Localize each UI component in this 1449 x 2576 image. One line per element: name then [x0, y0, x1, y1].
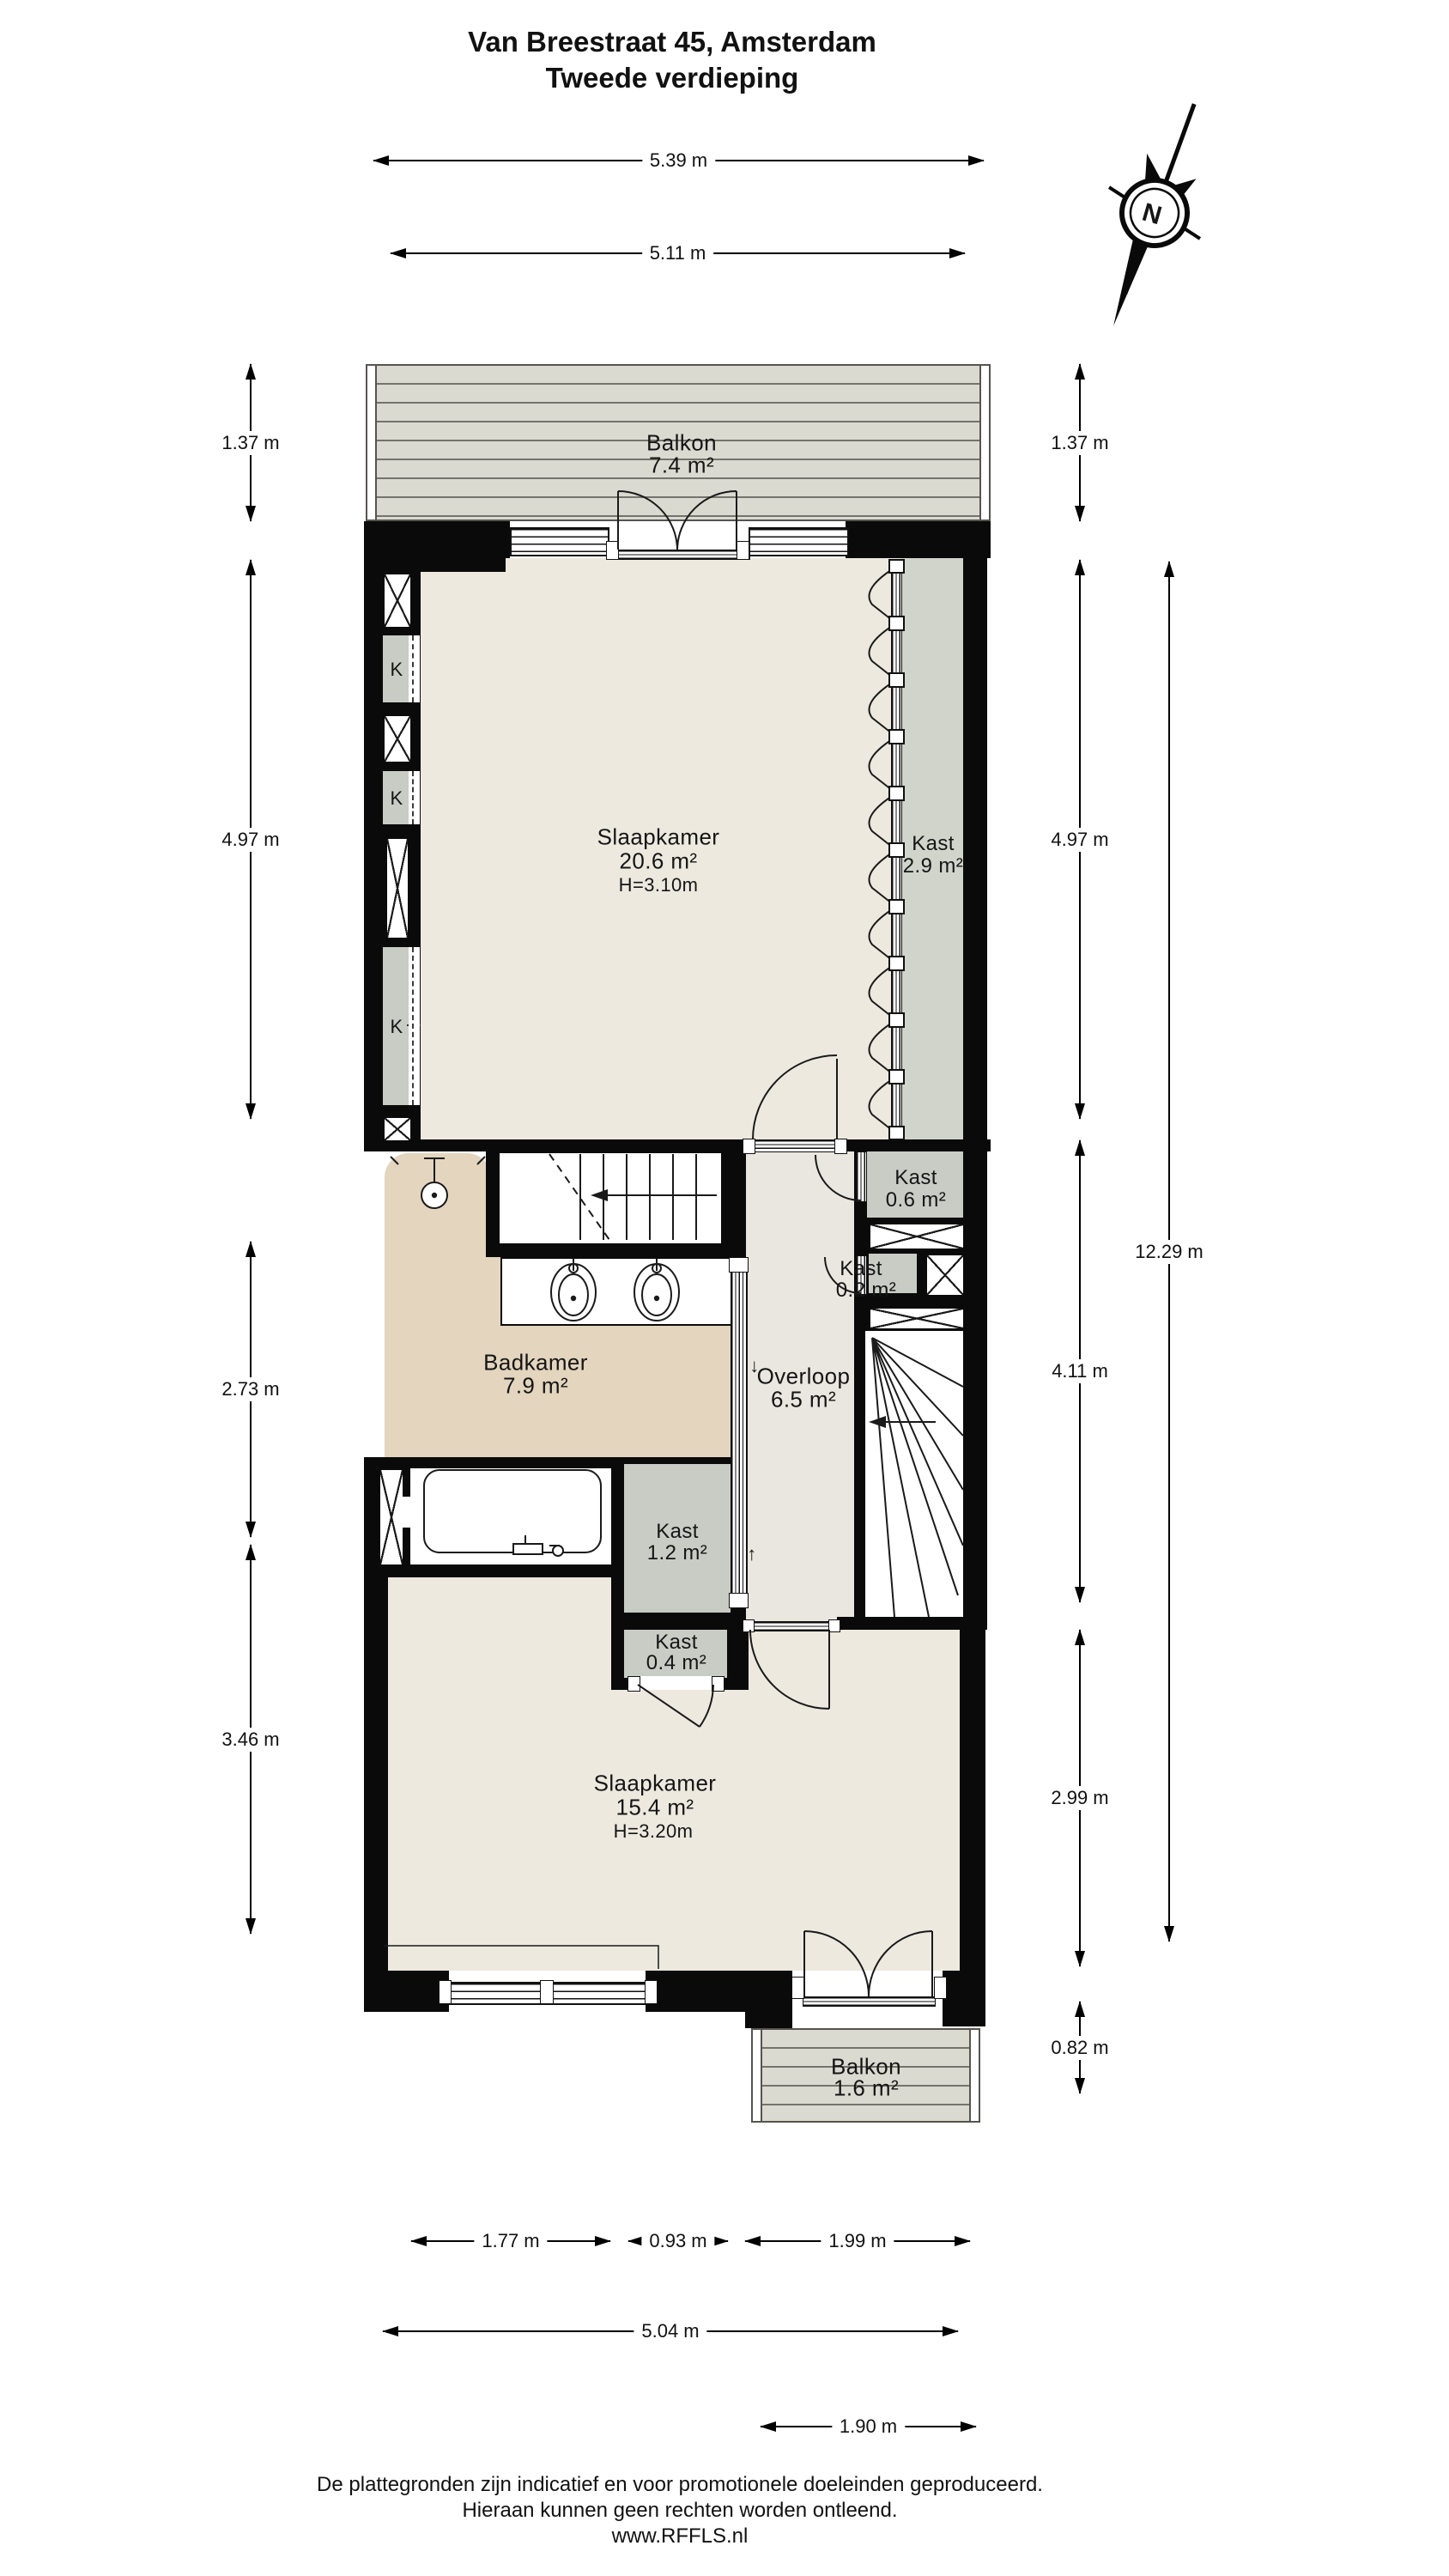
footer-disclaimer-2: Hieraan kunnen geen rechten worden ontle…	[462, 2499, 897, 2523]
dimension-right-1: 1.37 m	[1072, 364, 1088, 521]
footer-website: www.RFFLS.nl	[612, 2524, 749, 2549]
dimension-right-5: 0.82 m	[1072, 2002, 1088, 2093]
room-label-slaapkamer1: Slaapkamer	[597, 824, 720, 851]
room-area-kast02: 0.2 m²	[836, 1279, 896, 1303]
room-area-kast29: 2.9 m²	[903, 854, 963, 878]
room-label-kast02: Kast	[840, 1257, 882, 1281]
dimension-right-4: 2.99 m	[1072, 1630, 1088, 1966]
room-label-kast12: Kast	[656, 1520, 699, 1544]
dimension-bottom-3: 1.99 m	[745, 2233, 970, 2249]
dimension-bottom-5: 1.90 m	[761, 2419, 976, 2434]
room-area-kast04: 0.4 m²	[646, 1651, 706, 1675]
page-title: Van Breestraat 45, Amsterdam	[468, 26, 876, 58]
closet-k-label: K	[390, 659, 403, 681]
dimension-left-3: 2.73 m	[243, 1242, 258, 1537]
room-height-slaapkamer1: H=3.10m	[619, 874, 699, 896]
footer-disclaimer-1: De plattegronden zijn indicatief en voor…	[317, 2473, 1043, 2497]
dimension-right-total: 12.29 m	[1161, 562, 1177, 1941]
room-area-overloop: 6.5 m²	[771, 1387, 836, 1413]
floorplan-page: Van Breestraat 45, Amsterdam Tweede verd…	[0, 0, 1449, 2576]
room-area-slaapkamer1: 20.6 m²	[620, 848, 698, 875]
closet-k-label: K	[390, 787, 403, 810]
dimension-left-4: 3.46 m	[243, 1545, 258, 1934]
room-label-kast29: Kast	[912, 832, 955, 856]
stairs-down-arrow-icon: ↓	[749, 1355, 759, 1377]
dimension-bottom-1: 1.77 m	[411, 2233, 610, 2249]
room-area-kast06: 0.6 m²	[886, 1188, 946, 1212]
dimension-left-1: 1.37 m	[243, 364, 258, 521]
dimension-right-3: 4.11 m	[1072, 1140, 1088, 1602]
room-label-slaapkamer2: Slaapkamer	[594, 1771, 717, 1797]
room-area-slaapkamer2: 15.4 m²	[616, 1795, 694, 1821]
dimension-right-2: 4.97 m	[1072, 560, 1088, 1119]
stairs-up-arrow-icon: ↑	[747, 1543, 756, 1565]
dimension-top-inner: 5.11 m	[391, 246, 965, 261]
dimension-left-2: 4.97 m	[243, 560, 258, 1119]
room-area-balkon-top: 7.4 m²	[649, 453, 714, 479]
room-area-kast12: 1.2 m²	[647, 1541, 707, 1565]
plan-linework	[0, 0, 1449, 2576]
dimension-bottom-4: 5.04 m	[383, 2324, 958, 2339]
closet-k-label: K	[390, 1016, 403, 1038]
page-subtitle: Tweede verdieping	[546, 62, 799, 94]
dimension-bottom-2: 0.93 m	[628, 2233, 728, 2249]
room-height-slaapkamer2: H=3.20m	[614, 1820, 694, 1843]
room-label-kast06: Kast	[894, 1166, 937, 1190]
room-area-balkon-bottom: 1.6 m²	[834, 2075, 899, 2102]
room-area-badkamer: 7.9 m²	[503, 1373, 568, 1400]
dimension-top-outer: 5.39 m	[373, 153, 984, 168]
